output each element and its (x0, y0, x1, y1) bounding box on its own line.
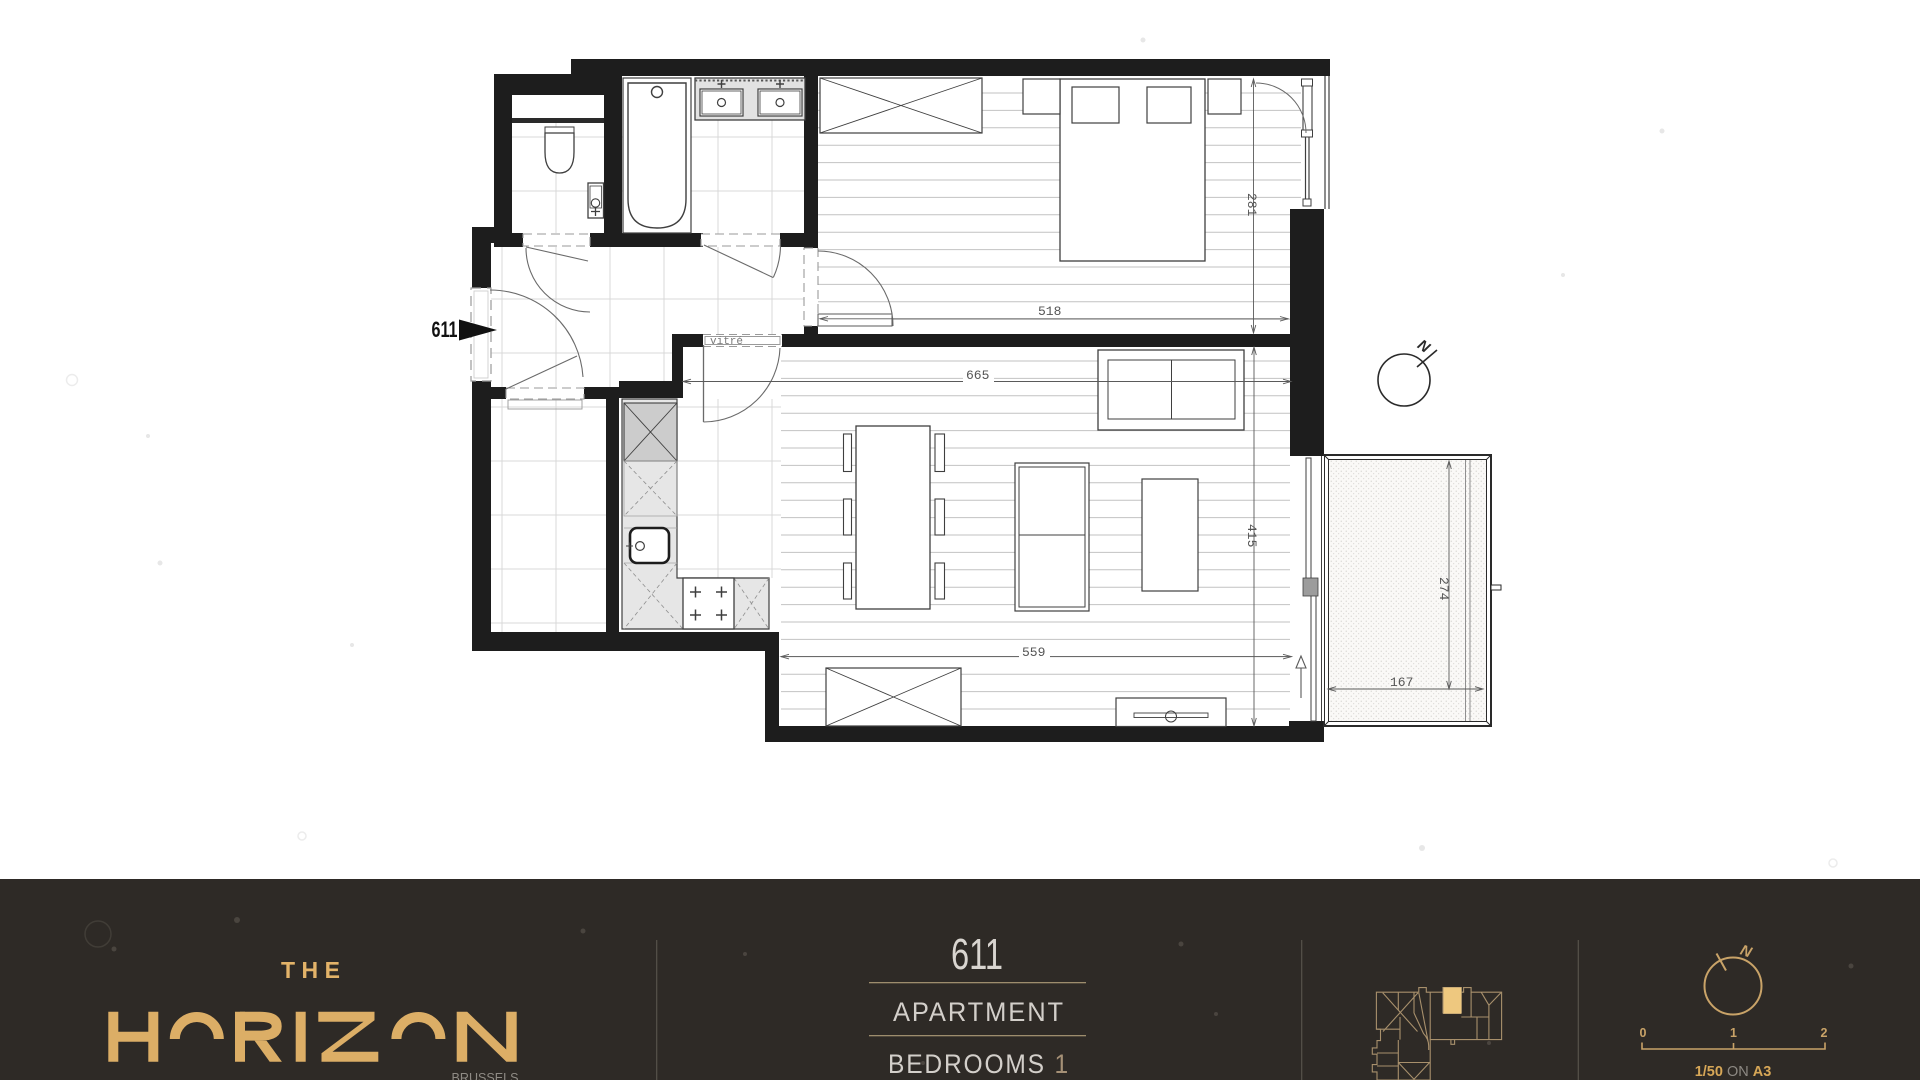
svg-text:THE: THE (281, 957, 351, 983)
svg-text:BEDROOMS 1: BEDROOMS 1 (888, 1049, 1070, 1079)
svg-text:vitré: vitré (710, 336, 743, 348)
svg-text:0: 0 (1640, 1026, 1647, 1040)
svg-text:415: 415 (1244, 524, 1259, 547)
svg-text:BRUSSELS: BRUSSELS (452, 1071, 519, 1080)
svg-text:167: 167 (1390, 675, 1413, 690)
svg-text:611: 611 (432, 317, 458, 342)
svg-text:281: 281 (1244, 193, 1259, 217)
svg-text:665: 665 (966, 368, 989, 383)
svg-text:611: 611 (951, 930, 1003, 979)
svg-text:1: 1 (1730, 1026, 1737, 1040)
svg-text:1/50 ON A3: 1/50 ON A3 (1695, 1064, 1772, 1080)
svg-text:274: 274 (1436, 577, 1451, 601)
svg-text:518: 518 (1038, 304, 1061, 319)
svg-text:559: 559 (1022, 645, 1045, 660)
svg-text:APARTMENT: APARTMENT (893, 997, 1065, 1027)
svg-text:2: 2 (1821, 1026, 1828, 1040)
